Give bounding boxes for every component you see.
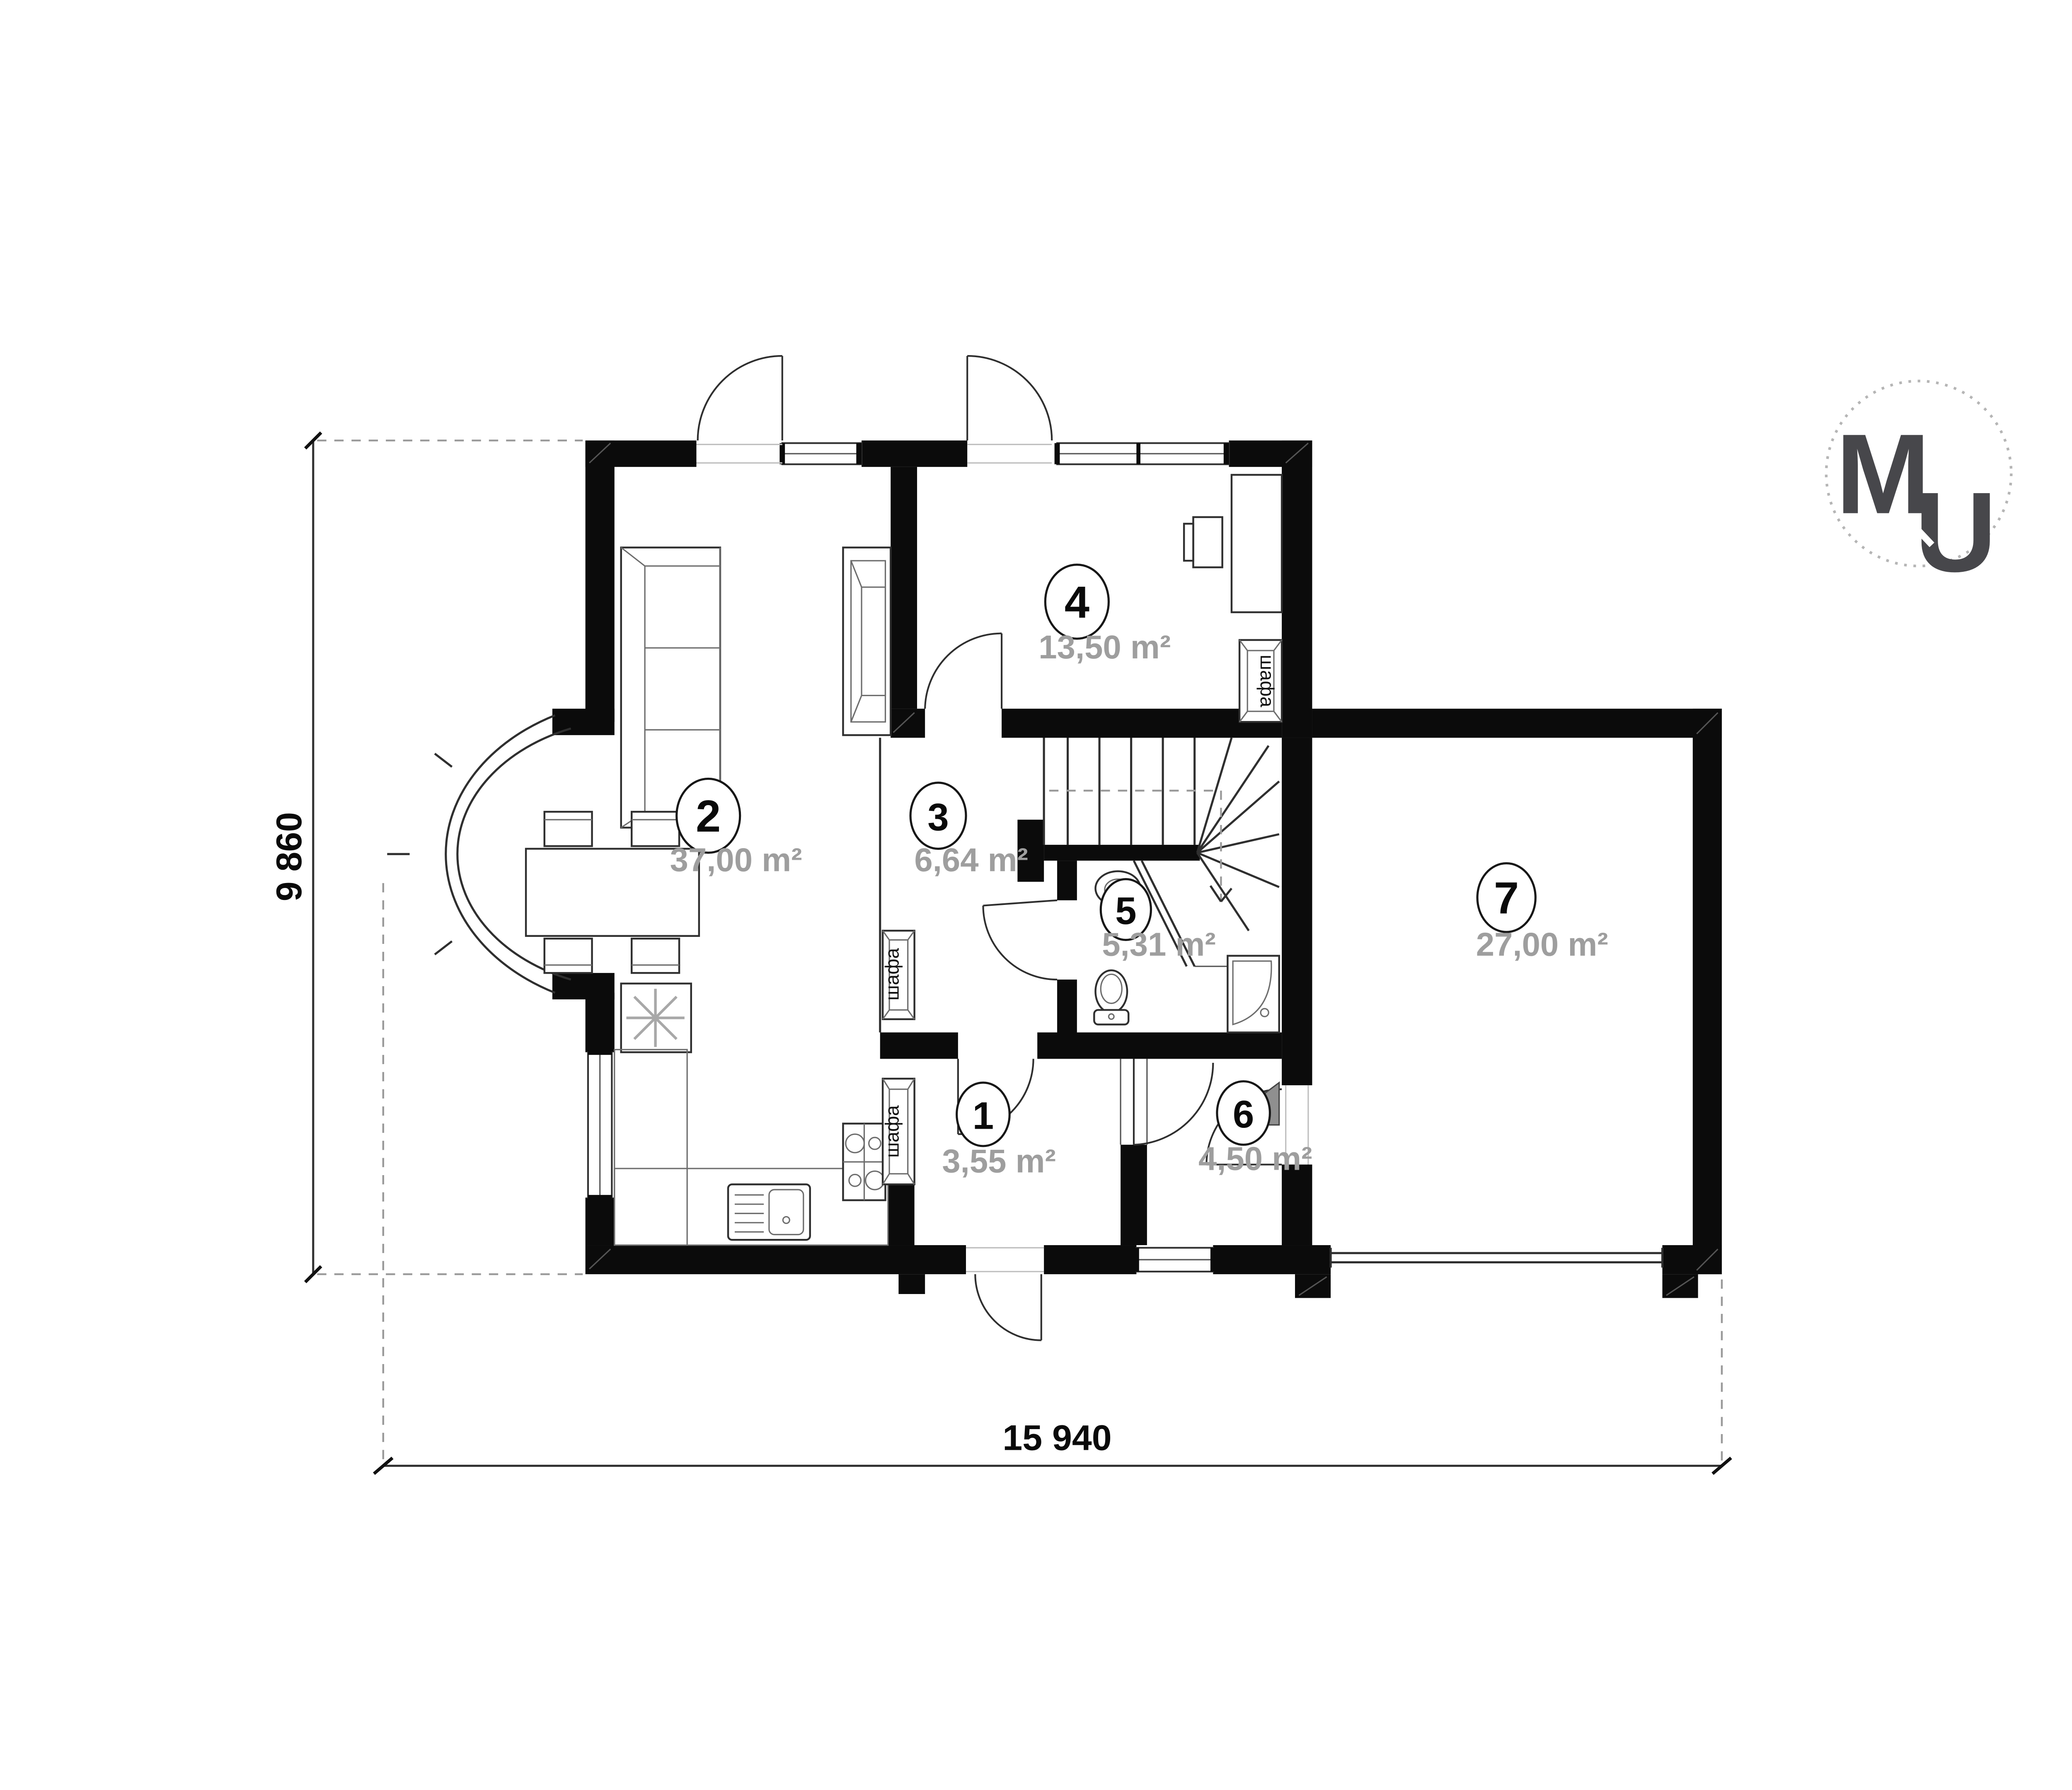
svg-text:4: 4: [1065, 577, 1089, 627]
floor-plan-drawing: 15 940 9 860: [0, 0, 2072, 1790]
kitchen-cooktop: [843, 1124, 885, 1200]
door-room1-room6: [1121, 1059, 1213, 1144]
desk: [1184, 475, 1282, 612]
svg-text:7: 7: [1494, 873, 1519, 923]
svg-text:4,50 m²: 4,50 m²: [1198, 1140, 1312, 1177]
door-bathroom: [983, 900, 1057, 980]
svg-text:1: 1: [973, 1094, 994, 1137]
wardrobe-room4-label: шафа: [1256, 655, 1278, 707]
svg-text:6,64 m²: 6,64 m²: [914, 842, 1028, 878]
wardrobe-room4: шафа: [1239, 640, 1282, 722]
logo-letter-u: U: [1915, 469, 1997, 596]
room-label-1: 1 3,55 m²: [942, 1083, 1056, 1180]
room-label-4: 4 13,50 m²: [1038, 565, 1171, 665]
room-label-2: 2 37,00 m²: [670, 779, 802, 878]
door-entrance: [966, 1248, 1044, 1340]
window-bottom-room6: [1134, 1248, 1216, 1271]
logo-mu: M U: [1826, 381, 2011, 596]
svg-text:2: 2: [696, 791, 721, 841]
fireplace: [843, 547, 891, 735]
floor-plan-page: 15 940 9 860: [0, 0, 2072, 1790]
room-label-7: 7 27,00 m²: [1476, 863, 1608, 963]
dining-table: [526, 812, 699, 973]
svg-text:6: 6: [1233, 1093, 1254, 1136]
door-terrace-right: [967, 356, 1052, 463]
door-terrace-left: [696, 356, 782, 463]
window-top-2: [1055, 443, 1229, 464]
toilet: [1094, 970, 1128, 1025]
svg-text:5,31 m²: 5,31 m²: [1102, 926, 1216, 963]
dimension-height-label: 9 860: [269, 812, 309, 901]
room-label-3: 3 6,64 m²: [910, 783, 1028, 878]
svg-text:13,50 m²: 13,50 m²: [1038, 629, 1171, 665]
garage-door: [1331, 1248, 1662, 1268]
svg-text:3: 3: [927, 796, 949, 839]
svg-text:37,00 m²: 37,00 m²: [670, 842, 802, 878]
door-room4: [925, 634, 1002, 709]
kitchen-sink: [728, 1184, 810, 1240]
wardrobe-room3: шафа: [881, 931, 914, 1019]
boiler-star-symbol: [621, 984, 691, 1052]
svg-text:27,00 m²: 27,00 m²: [1476, 926, 1608, 963]
dimension-width-label: 15 940: [1002, 1418, 1111, 1458]
kitchen: [615, 1050, 888, 1245]
window-top-1: [779, 443, 862, 464]
svg-text:3,55 m²: 3,55 m²: [942, 1143, 1056, 1180]
wardrobe-room1-label: шафа: [881, 1105, 903, 1158]
shower: [1227, 956, 1279, 1033]
window-left: [588, 1050, 612, 1200]
wardrobe-room3-label: шафа: [881, 948, 903, 1001]
wardrobe-room1: шафа: [881, 1079, 914, 1184]
